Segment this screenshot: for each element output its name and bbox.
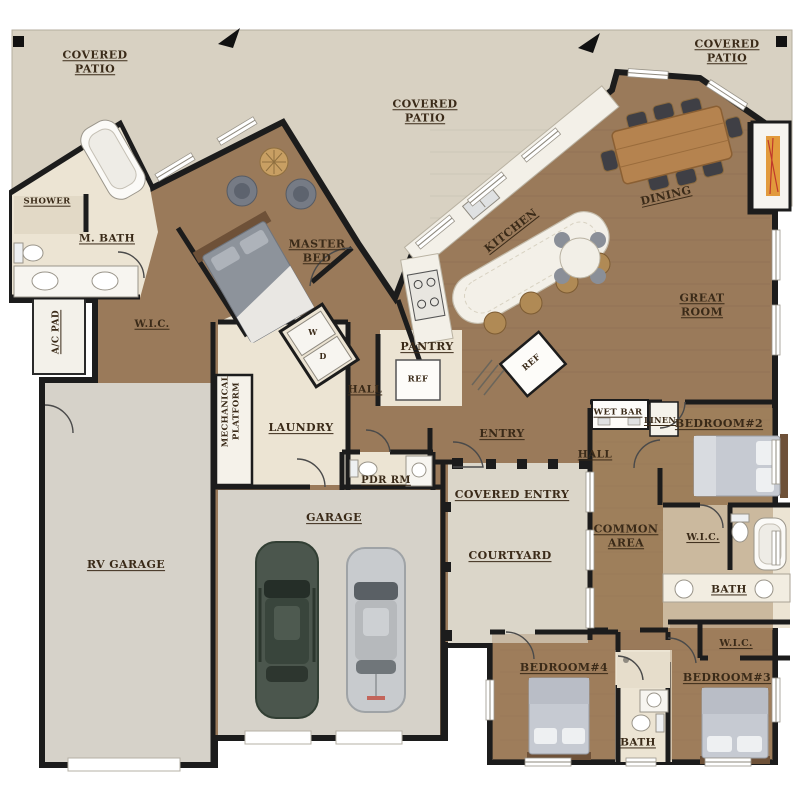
shower-floor <box>14 196 88 234</box>
bedroom3-bed <box>700 688 770 764</box>
fireplace <box>752 122 790 210</box>
wet-bar <box>592 400 648 429</box>
mechanical-platform-box <box>216 375 252 485</box>
ac-pad-slab <box>33 298 85 374</box>
garage-floor <box>218 490 440 735</box>
floor-plan: COVERED PATIO COVERED PATIO COVERED PATI… <box>0 0 800 800</box>
pantry-fridge <box>396 360 440 400</box>
car-silver <box>347 548 405 712</box>
linen-closet <box>650 402 678 436</box>
round-table-set <box>554 232 606 284</box>
floor-plan-drawing <box>0 0 800 800</box>
car-green <box>256 542 318 718</box>
master-toilet <box>14 243 43 263</box>
courtyard-floor <box>448 463 588 643</box>
rv-garage-floor <box>45 383 212 762</box>
bedroom4-bed <box>527 678 591 760</box>
